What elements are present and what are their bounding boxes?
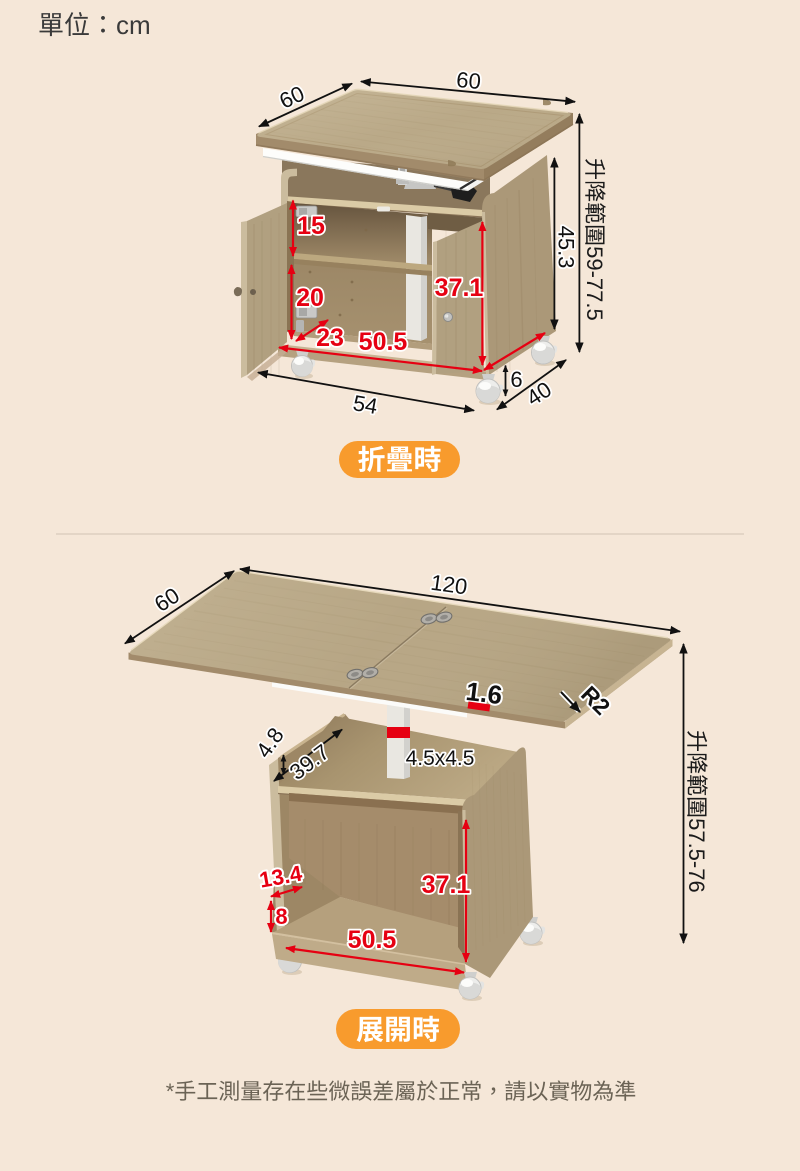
svg-text:8: 8: [275, 904, 287, 929]
svg-text:4.5x4.5: 4.5x4.5: [406, 747, 475, 770]
svg-text:15: 15: [297, 212, 325, 240]
svg-text:37.1: 37.1: [422, 871, 471, 899]
svg-text:6: 6: [510, 367, 522, 392]
svg-text:57.5-76: 57.5-76: [684, 818, 709, 893]
svg-text:60: 60: [455, 67, 482, 94]
svg-text:37.1: 37.1: [435, 274, 484, 302]
svg-text:20: 20: [296, 284, 324, 312]
svg-text:50.5: 50.5: [359, 328, 408, 356]
svg-text:54: 54: [351, 390, 379, 419]
svg-text:*: *: [166, 1079, 175, 1104]
svg-text:cm: cm: [116, 10, 151, 40]
svg-text:120: 120: [429, 570, 469, 600]
svg-text:23: 23: [316, 324, 344, 352]
svg-text:59-77.5: 59-77.5: [582, 246, 607, 321]
svg-text:45.3: 45.3: [554, 226, 579, 269]
svg-text:50.5: 50.5: [348, 926, 397, 954]
